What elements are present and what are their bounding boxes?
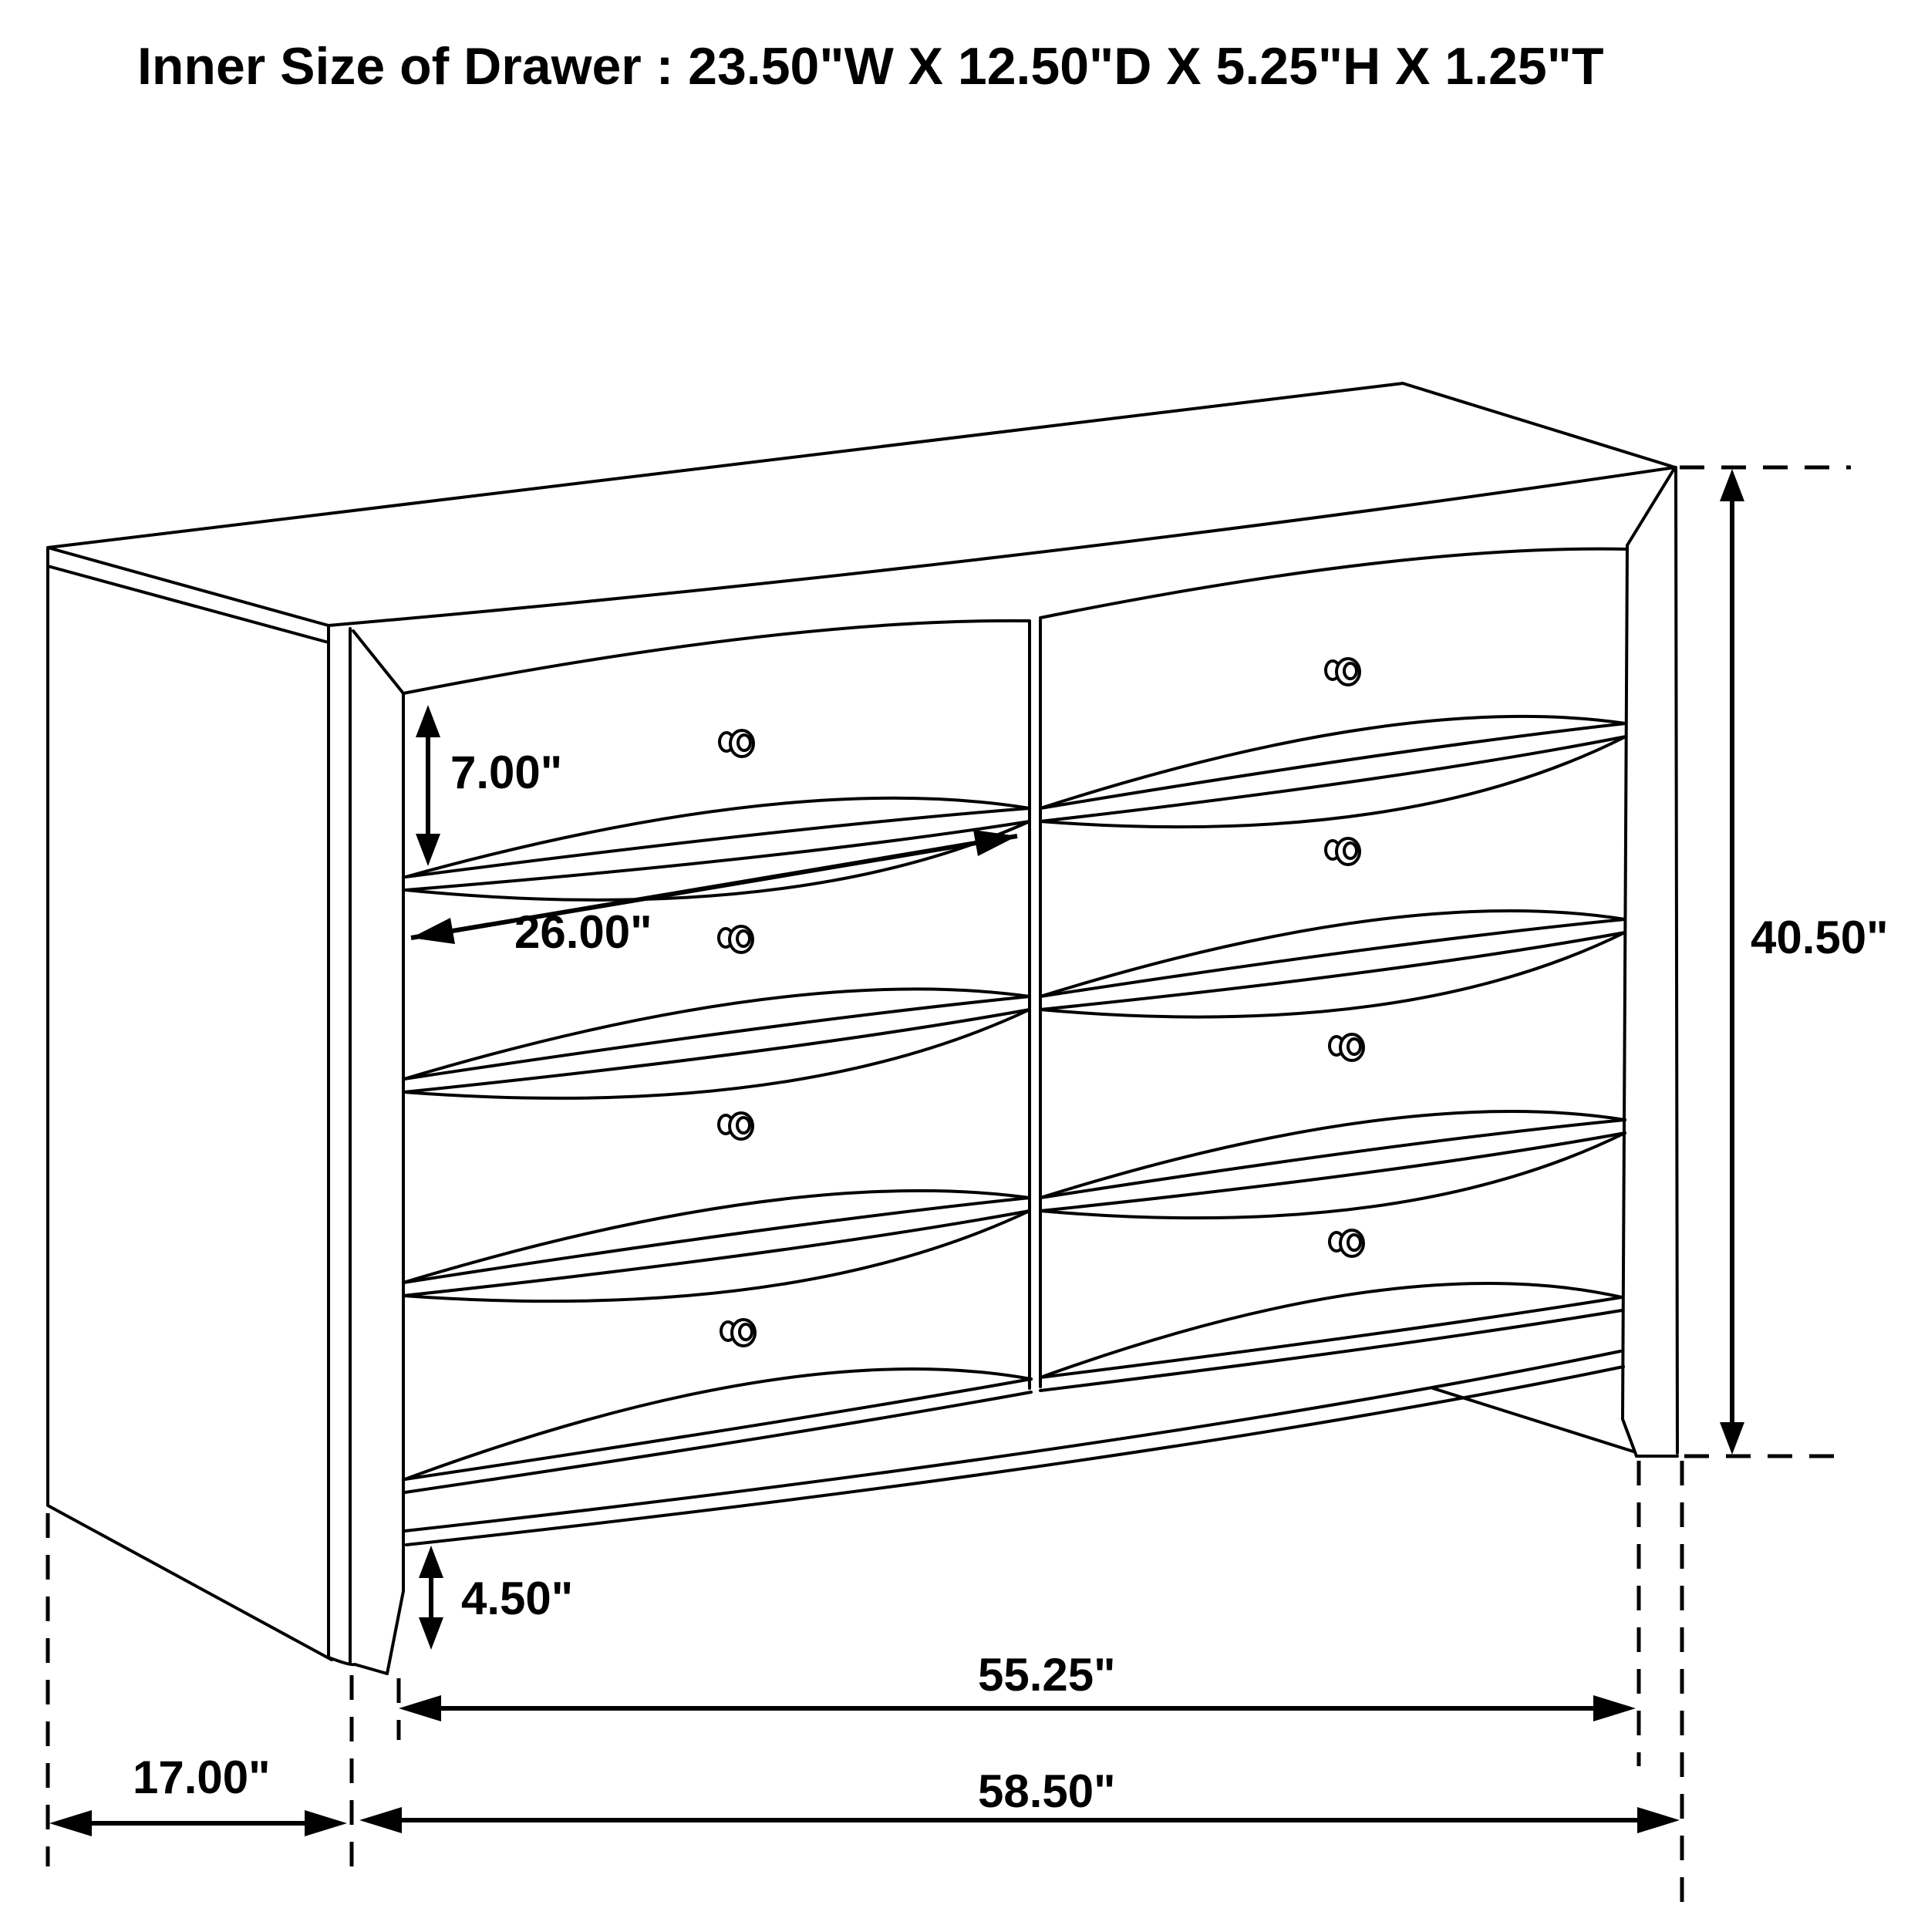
svg-text:58.50": 58.50": [978, 1765, 1116, 1817]
svg-text:7.00": 7.00": [450, 747, 562, 798]
svg-text:55.25": 55.25": [978, 1649, 1116, 1701]
svg-text:Inner Size of Drawer : 23.50"W: Inner Size of Drawer : 23.50"W X 12.50"D…: [137, 37, 1604, 96]
svg-text:40.50": 40.50": [1751, 912, 1889, 963]
svg-text:17.00": 17.00": [133, 1752, 271, 1803]
svg-text:26.00": 26.00": [514, 906, 652, 958]
svg-text:4.50": 4.50": [461, 1573, 573, 1624]
